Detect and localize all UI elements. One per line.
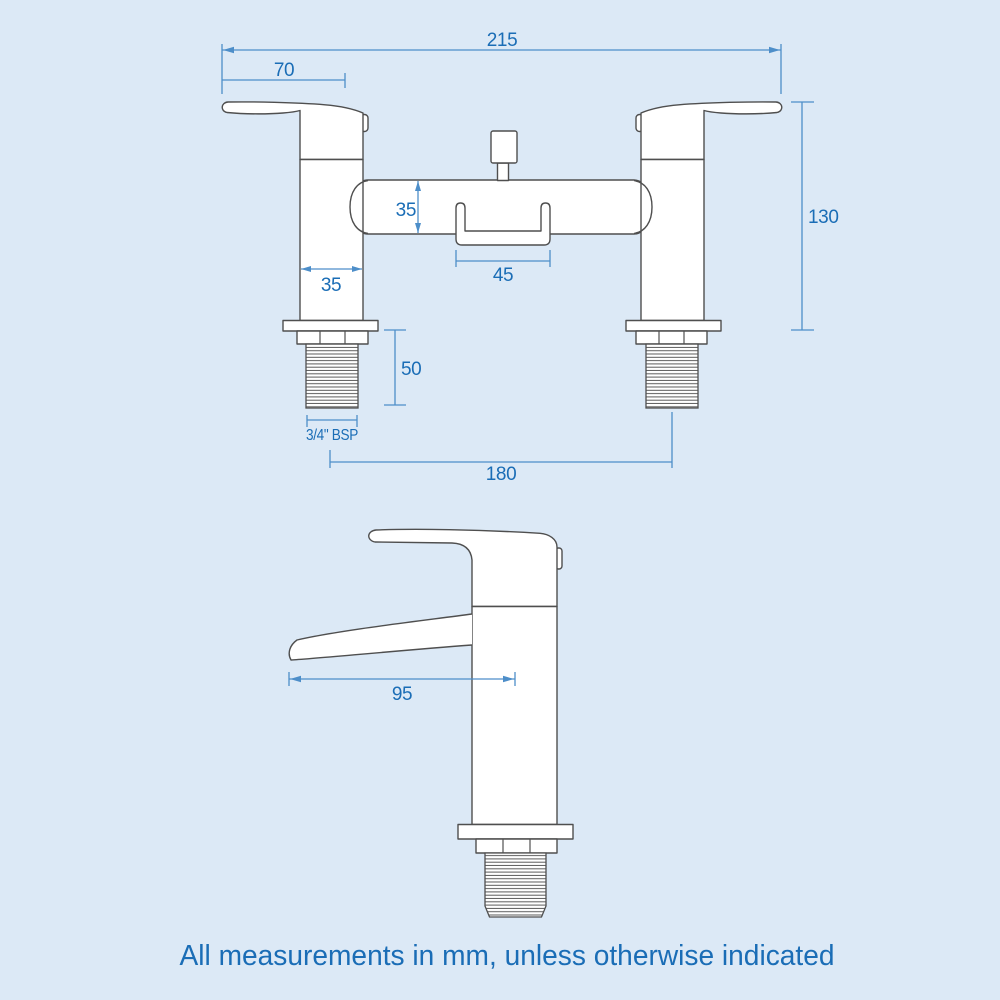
dim-label-inlet-centres: 180 [486, 464, 517, 485]
backnut [297, 331, 368, 344]
dim-handle-length: 70 [222, 60, 345, 88]
diagram-page: 215 70 130 35 35 [0, 0, 1000, 1000]
diverter-knob [491, 131, 517, 163]
dim-label-overall-width: 215 [487, 30, 518, 51]
dim-label-body-depth: 35 [396, 200, 416, 221]
lever-handle-side [369, 529, 557, 606]
dim-thread-size: 3/4" BSP [306, 415, 358, 444]
dim-label-tail-length: 50 [401, 359, 421, 380]
waterfall-spout-side [289, 614, 472, 660]
dim-tail-length: 50 [384, 330, 421, 405]
dim-label-thread-size: 3/4" BSP [306, 427, 358, 444]
lever-handle [222, 102, 363, 160]
dim-overall-height: 130 [791, 102, 839, 330]
measurement-note: All measurements in mm, unless otherwise… [180, 940, 835, 972]
dim-diverter-width: 45 [456, 250, 550, 286]
base-flange-side [458, 825, 573, 840]
dim-label-overall-height: 130 [808, 207, 839, 228]
right-pillar-assembly [626, 102, 782, 408]
dim-overall-width: 215 [222, 30, 781, 94]
dim-label-pillar-width: 35 [321, 275, 341, 296]
tap-technical-drawing: 215 70 130 35 35 [0, 0, 1000, 1000]
threaded-tail [306, 344, 358, 408]
dim-label-handle-length: 70 [274, 60, 294, 81]
front-view [222, 102, 782, 408]
side-view [289, 529, 573, 917]
base-flange [283, 321, 378, 332]
backnut-side [476, 839, 557, 853]
left-pillar-assembly [222, 102, 378, 408]
dim-label-spout-reach: 95 [392, 684, 412, 705]
dim-label-diverter-width: 45 [493, 265, 513, 286]
diverter-stem [498, 163, 509, 181]
tap-body-side [472, 607, 557, 825]
dim-inlet-centres: 180 [330, 412, 672, 485]
pillar-column [300, 160, 363, 321]
threaded-tail-side [485, 853, 546, 917]
